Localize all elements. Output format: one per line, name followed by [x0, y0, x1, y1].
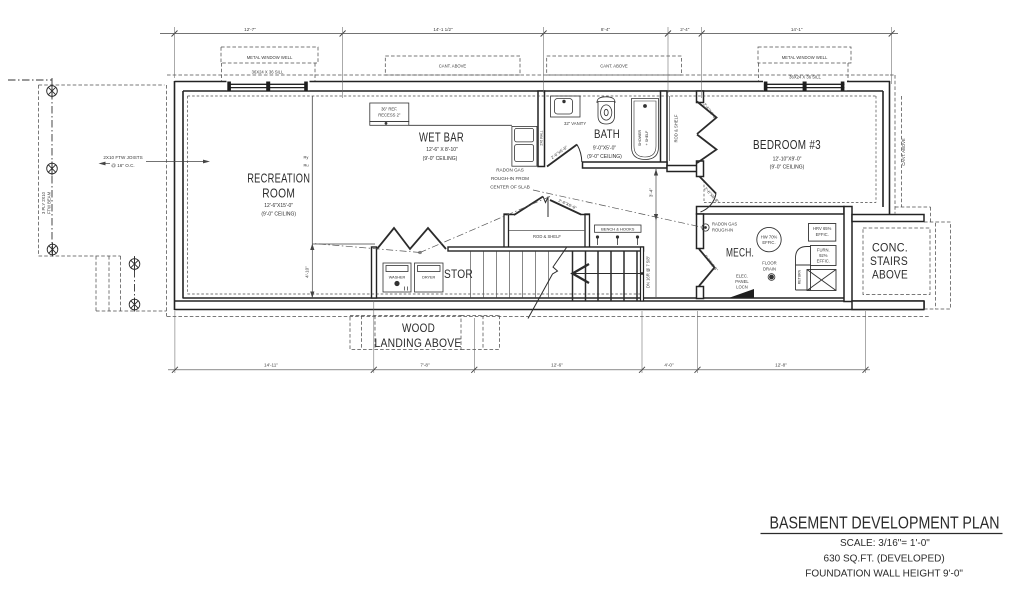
svg-text:BEDROOM #3: BEDROOM #3 [753, 137, 821, 152]
svg-text:@ 16" O.C.: @ 16" O.C. [111, 163, 134, 168]
svg-text:14'-1": 14'-1" [791, 27, 803, 32]
svg-text:4'-10": 4'-10" [305, 266, 310, 278]
svg-text:12'-8": 12'-8" [775, 363, 787, 368]
svg-text:FLOOR: FLOOR [762, 261, 776, 266]
svg-text:8'-4": 8'-4" [601, 27, 611, 32]
svg-text:36" REF.: 36" REF. [381, 107, 397, 112]
svg-text:2'-4": 2'-4" [680, 27, 690, 32]
svg-text:14'-1 1/2": 14'-1 1/2" [433, 27, 453, 32]
svg-text:BASEMENT DEVELOPMENT PLAN: BASEMENT DEVELOPMENT PLAN [770, 513, 1000, 533]
svg-text:ROD & SHELF: ROD & SHELF [674, 114, 679, 142]
svg-text:12'-6": 12'-6" [551, 363, 563, 368]
svg-text:92%: 92% [819, 253, 828, 258]
svg-text:630 SQ.FT. (DEVELOPED): 630 SQ.FT. (DEVELOPED) [824, 554, 945, 565]
svg-text:METAL WINDOW WELL: METAL WINDOW WELL [247, 55, 293, 60]
svg-text:CANT. ABOVE: CANT. ABOVE [901, 138, 906, 166]
svg-text:BENCH & HOOKS: BENCH & HOOKS [601, 227, 635, 232]
svg-text:MECH.: MECH. [726, 246, 754, 260]
svg-text:36X24 X 36 SILL: 36X24 X 36 SILL [252, 70, 284, 75]
svg-text:EFFIC.: EFFIC. [762, 240, 775, 245]
svg-text:FTW BEAM: FTW BEAM [47, 191, 52, 214]
svg-text:LOCN: LOCN [736, 285, 748, 290]
svg-text:HRV 65%: HRV 65% [813, 226, 832, 231]
svg-text:EFFIC.: EFFIC. [816, 232, 829, 237]
svg-text:HW 70%: HW 70% [761, 235, 778, 240]
svg-text:7'-8": 7'-8" [420, 363, 430, 368]
svg-text:PANEL: PANEL [735, 279, 749, 284]
svg-text:BATH: BATH [594, 127, 620, 141]
svg-text:14'-11": 14'-11" [264, 363, 278, 368]
svg-text:LANDING ABOVE: LANDING ABOVE [375, 336, 462, 350]
svg-text:12'-10"X9'-0": 12'-10"X9'-0" [773, 157, 802, 163]
svg-text:FURN.: FURN. [817, 248, 830, 253]
svg-text:STAIRS: STAIRS [870, 254, 908, 268]
svg-text:CANT. ABOVE: CANT. ABOVE [600, 64, 628, 69]
svg-text:ROOM: ROOM [262, 186, 295, 201]
svg-text:(9'-0" CEILING): (9'-0" CEILING) [261, 212, 296, 218]
svg-text:CANT. ABOVE: CANT. ABOVE [439, 64, 467, 69]
svg-text:WET BAR: WET BAR [419, 130, 464, 145]
svg-text:SHOWER: SHOWER [638, 130, 642, 147]
svg-text:RADON GAS: RADON GAS [496, 168, 524, 173]
svg-text:EFFIC.: EFFIC. [817, 259, 830, 264]
svg-text:DRYER: DRYER [422, 276, 435, 280]
svg-text:2X10 FTW JOISTS: 2X10 FTW JOISTS [103, 155, 142, 160]
svg-text:RECESS 2": RECESS 2" [378, 113, 401, 118]
svg-text:(9'-0" CEILING): (9'-0" CEILING) [587, 154, 622, 160]
svg-text:(9'-0" CEILING): (9'-0" CEILING) [770, 165, 805, 171]
svg-text:RADON GAS: RADON GAS [712, 222, 737, 227]
svg-text:ABOVE: ABOVE [872, 268, 908, 282]
svg-text:ROUGH-IN: ROUGH-IN [712, 228, 733, 233]
svg-text:METAL WINDOW WELL: METAL WINDOW WELL [782, 55, 828, 60]
svg-text:9'-0"X5'-0": 9'-0"X5'-0" [593, 146, 616, 152]
svg-text:(9'-0" CEILING): (9'-0" CEILING) [423, 156, 458, 162]
svg-text:4'-0": 4'-0" [664, 363, 674, 368]
svg-text:ELEC.: ELEC. [736, 274, 748, 279]
svg-text:12'-7": 12'-7" [244, 27, 256, 32]
svg-text:RETURN: RETURN [798, 269, 802, 284]
svg-text:Ry: Ry [304, 155, 309, 160]
svg-text:12'-6" X 8'-10": 12'-6" X 8'-10" [426, 147, 458, 153]
svg-text:WASHER: WASHER [389, 276, 406, 280]
svg-text:FOUNDATION WALL HEIGHT 9'-0": FOUNDATION WALL HEIGHT 9'-0" [805, 569, 963, 580]
svg-text:ROUGH-IN FROM: ROUGH-IN FROM [491, 176, 529, 181]
svg-text:Ru: Ru [304, 163, 309, 168]
svg-text:DRAIN: DRAIN [763, 267, 776, 272]
svg-text:36X24 X 36 SILL: 36X24 X 36 SILL [789, 75, 821, 80]
svg-text:CONC.: CONC. [872, 241, 908, 255]
svg-text:WOOD: WOOD [402, 321, 435, 335]
svg-text:12'-6"X15'-0": 12'-6"X15'-0" [264, 203, 293, 209]
svg-text:3 PLY 2X10: 3 PLY 2X10 [41, 191, 46, 214]
svg-text:32" VANITY: 32" VANITY [564, 121, 586, 126]
svg-text:STOR: STOR [444, 267, 473, 281]
svg-text:3'-4": 3'-4" [648, 188, 653, 198]
svg-text:CENTER OF SLAB: CENTER OF SLAB [490, 185, 530, 190]
svg-text:+ SHELF: + SHELF [645, 130, 649, 145]
svg-text:DN 16R @ 7 5/8": DN 16R @ 7 5/8" [646, 255, 651, 288]
svg-text:2X6 WALL: 2X6 WALL [539, 130, 543, 145]
svg-text:SCALE: 3/16"= 1'-0": SCALE: 3/16"= 1'-0" [840, 538, 930, 549]
svg-text:RECREATION: RECREATION [247, 171, 310, 186]
svg-text:ROD & SHELF: ROD & SHELF [533, 234, 561, 239]
